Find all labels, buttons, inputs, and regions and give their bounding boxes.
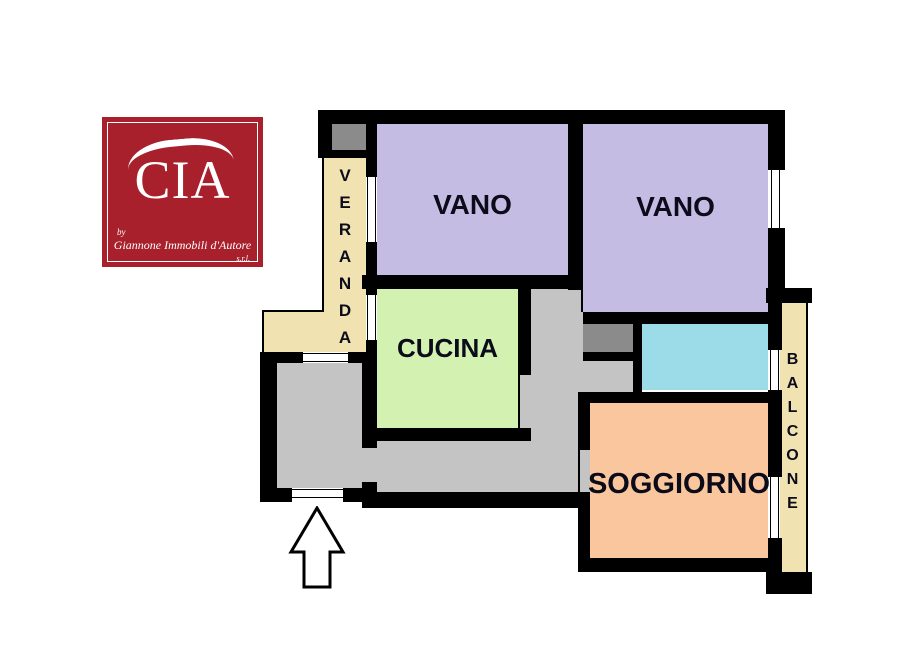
corridor (520, 375, 531, 428)
entry-arrow-icon (288, 506, 346, 590)
wall-segment (583, 312, 768, 324)
wall-segment (578, 392, 590, 450)
room-bagno (642, 324, 768, 390)
wall-segment (568, 110, 583, 290)
wall-segment (583, 352, 633, 361)
wall-segment (318, 110, 332, 158)
label-vano-right: VANO (583, 193, 768, 221)
wall-segment (326, 150, 368, 158)
window (367, 295, 376, 340)
wall-segment (318, 110, 785, 124)
corridor (568, 312, 583, 392)
logo-monogram: CIA (102, 153, 263, 207)
wall-segment (766, 288, 812, 303)
wall-segment (768, 110, 785, 170)
wall-segment (343, 488, 377, 502)
vestibule (583, 361, 633, 392)
wall-segment (260, 352, 277, 502)
wall-segment (578, 558, 768, 572)
wall-segment (362, 428, 531, 441)
wall-segment (768, 538, 782, 572)
corridor (375, 441, 531, 492)
label-vano-left: VANO (377, 191, 568, 219)
wall-segment (260, 488, 292, 502)
veranda-outline (262, 310, 324, 312)
logo-suffix: s.r.l. (236, 254, 250, 263)
wall-segment (518, 289, 531, 375)
door-line (578, 450, 580, 492)
window (367, 177, 376, 242)
room-ingresso (277, 363, 362, 488)
door-opening (362, 448, 377, 482)
wall-segment (366, 110, 377, 177)
agency-logo: CIA by Giannone Immobili d'Autore s.r.l. (102, 117, 263, 267)
entry-door (292, 489, 343, 498)
floor-plan-canvas: CIA by Giannone Immobili d'Autore s.r.l. (0, 0, 915, 659)
wall-segment (362, 363, 377, 448)
wall-segment (766, 572, 812, 594)
door-line (636, 365, 638, 390)
label-veranda: VERANDA (324, 165, 366, 355)
door-line (518, 375, 520, 428)
wall-segment (362, 275, 568, 289)
label-soggiorno: SOGGIORNO (586, 470, 772, 499)
logo-tagline: Giannone Immobili d'Autore (102, 238, 263, 253)
window (771, 170, 780, 228)
logo-by: by (117, 227, 126, 237)
veranda-closet (326, 124, 368, 150)
wall-segment (578, 392, 768, 403)
label-cucina: CUCINA (377, 335, 518, 361)
veranda-outline (262, 310, 264, 352)
hall-closet (583, 324, 633, 352)
door-line (581, 290, 583, 312)
room-veranda-ext (264, 312, 324, 352)
wall-segment (362, 492, 590, 508)
wall-segment (768, 228, 785, 290)
label-balcone: BALCONE (776, 340, 808, 530)
